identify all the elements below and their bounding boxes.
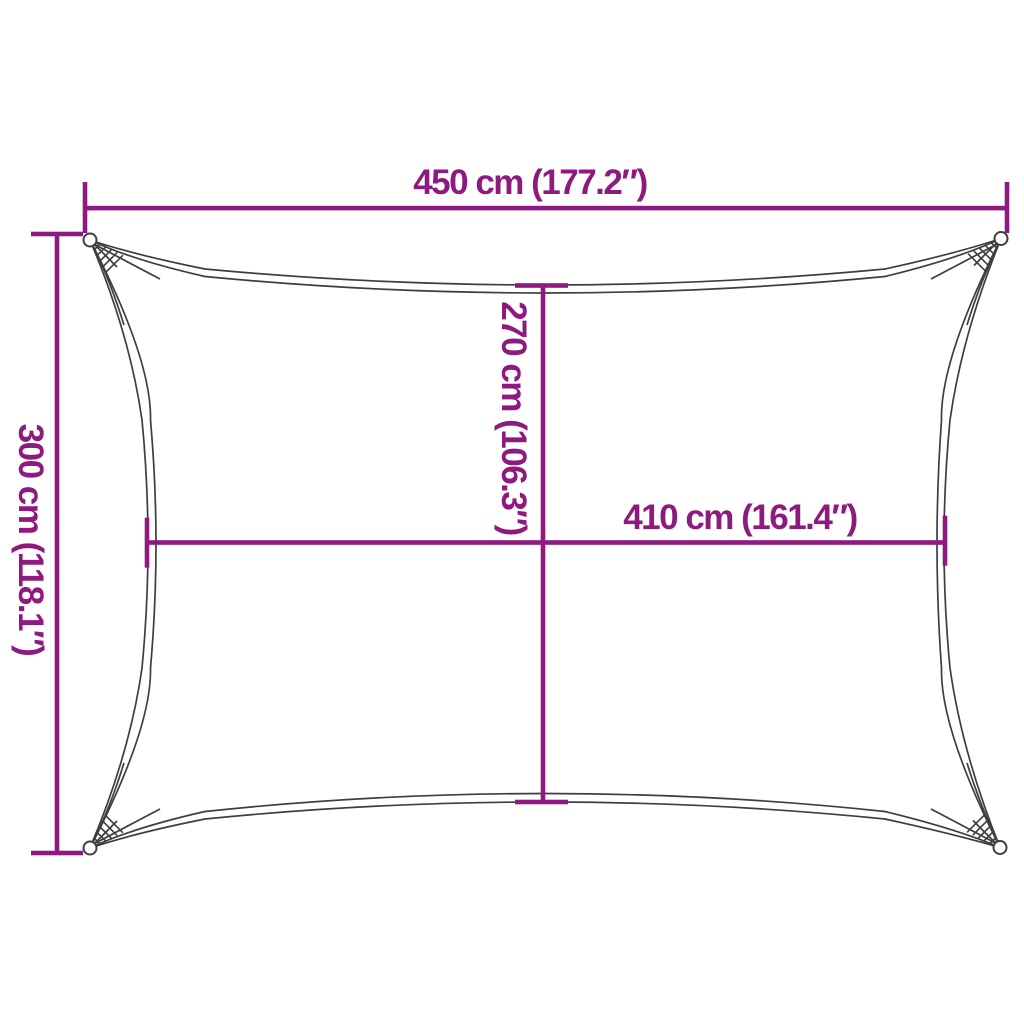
svg-text:270 cm (106.3″): 270 cm (106.3″): [494, 301, 533, 535]
svg-text:300 cm (118.1″): 300 cm (118.1″): [11, 424, 50, 656]
svg-text:410 cm (161.4″): 410 cm (161.4″): [623, 498, 857, 537]
svg-text:450 cm (177.2″): 450 cm (177.2″): [413, 163, 647, 202]
